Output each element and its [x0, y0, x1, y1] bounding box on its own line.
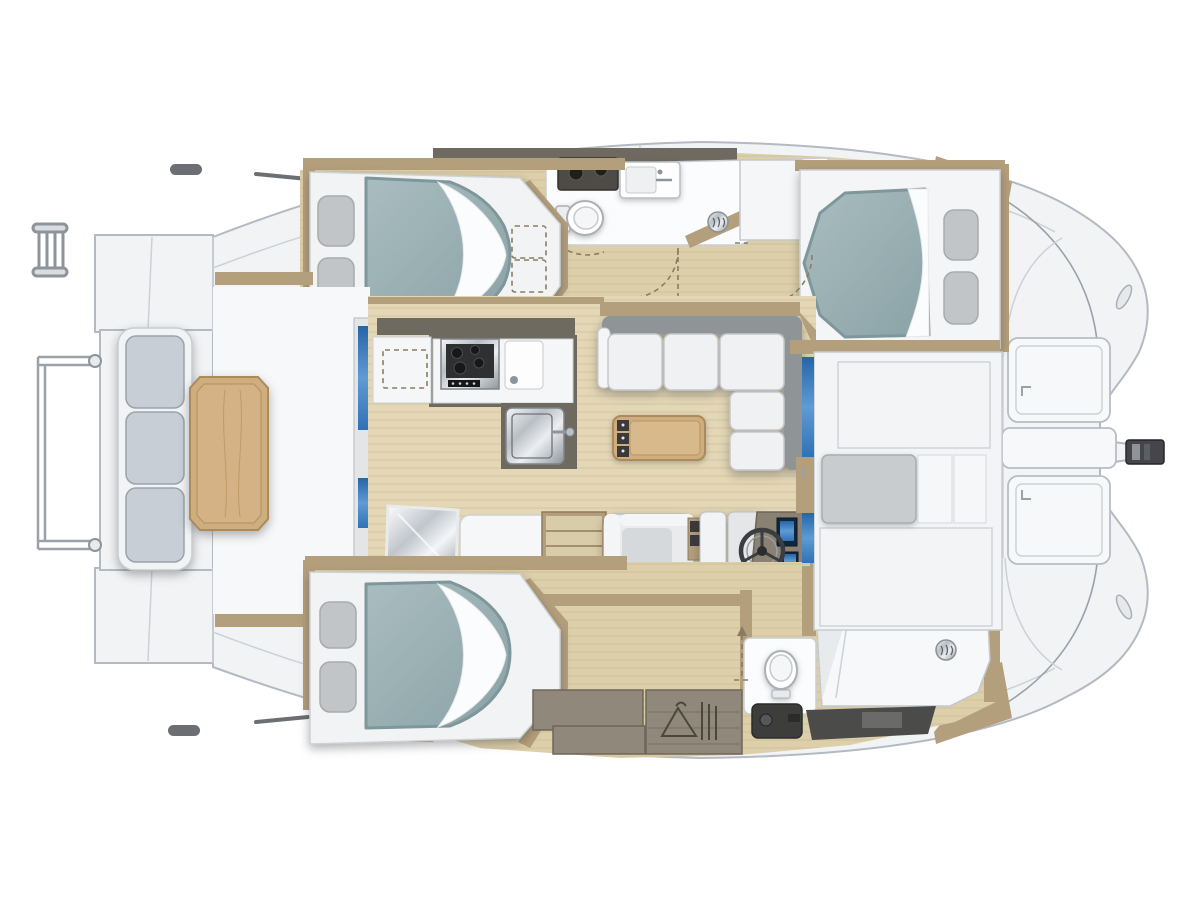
hull-window-blue	[802, 357, 814, 457]
double-bed-forward-top	[800, 170, 1000, 348]
berth-divider	[954, 455, 986, 523]
cooktop-icon	[441, 339, 499, 389]
locker-top	[740, 160, 802, 240]
sofa-backrest	[784, 316, 802, 470]
bench-cushion	[126, 336, 184, 408]
galley-wall	[377, 318, 575, 335]
coffee-table	[613, 416, 705, 460]
forward-cabin-lower	[790, 340, 1002, 630]
pillow	[944, 210, 978, 260]
saloon-trim-line	[368, 297, 604, 304]
sofa-cushion	[664, 334, 718, 390]
walkway-step	[862, 712, 902, 728]
swim-ladder-icon	[33, 224, 67, 276]
cabinet-taupe	[553, 726, 645, 754]
berth-mattress	[822, 455, 916, 523]
cockpit-trim-top	[215, 272, 313, 285]
grab-handle-icon	[168, 725, 200, 736]
berth-divider	[918, 455, 952, 523]
sofa-backrest	[602, 316, 802, 334]
catamaran-floor-plan	[0, 0, 1200, 900]
mattress-teal	[804, 189, 929, 337]
wardrobe	[646, 690, 742, 754]
cockpit-trim-bottom	[215, 614, 313, 627]
instrument-screen-glass	[780, 521, 794, 541]
dark-step-fixture	[752, 704, 802, 738]
pillow	[320, 602, 356, 648]
sofa-cushion-corner	[720, 334, 784, 390]
bulkhead-trim	[540, 594, 748, 606]
cabin-wall-trim	[303, 158, 625, 170]
counter-drain	[510, 376, 518, 384]
hull-window-blue	[802, 513, 814, 563]
anchor-locker-lid	[1002, 428, 1116, 468]
rail-pivot	[89, 355, 101, 367]
sink-icon	[506, 408, 574, 464]
sofa-wall-trim	[600, 302, 800, 316]
transom-platform-top	[95, 235, 213, 332]
galley-counter-left	[373, 337, 431, 403]
shower-drain-icon	[936, 640, 956, 660]
cabin-wall-trim	[305, 556, 627, 570]
stern-rail	[38, 357, 93, 549]
deck-hatch	[1008, 476, 1110, 564]
transom-platform-bottom	[95, 568, 213, 663]
grab-rail-icon	[256, 717, 308, 722]
pillow	[320, 662, 356, 712]
sofa-cushion	[730, 432, 784, 470]
grab-handle-icon	[170, 164, 202, 175]
cabinet-taupe	[533, 690, 643, 730]
bench-cushion	[126, 488, 184, 562]
sofa-cushion	[608, 334, 662, 390]
washbasin-icon	[620, 162, 680, 198]
cockpit-table	[190, 377, 268, 530]
pillow	[318, 196, 354, 246]
shower-drain-icon	[708, 212, 728, 232]
floor-plan-canvas	[0, 0, 1200, 900]
deck-hatch	[1008, 338, 1110, 422]
sofa-cushion	[730, 392, 784, 430]
pillow	[944, 272, 978, 324]
bowsprit-fitting	[1126, 440, 1164, 464]
window-trim-block	[796, 457, 814, 513]
bench-cushion	[126, 412, 184, 484]
cockpit-bench	[118, 328, 192, 570]
cabinet-drawer	[690, 521, 701, 532]
cabin-bottom-aft	[310, 572, 568, 748]
rail-pivot	[89, 539, 101, 551]
cabinet-drawer	[690, 535, 701, 546]
double-bed-aft-bottom	[310, 572, 560, 744]
